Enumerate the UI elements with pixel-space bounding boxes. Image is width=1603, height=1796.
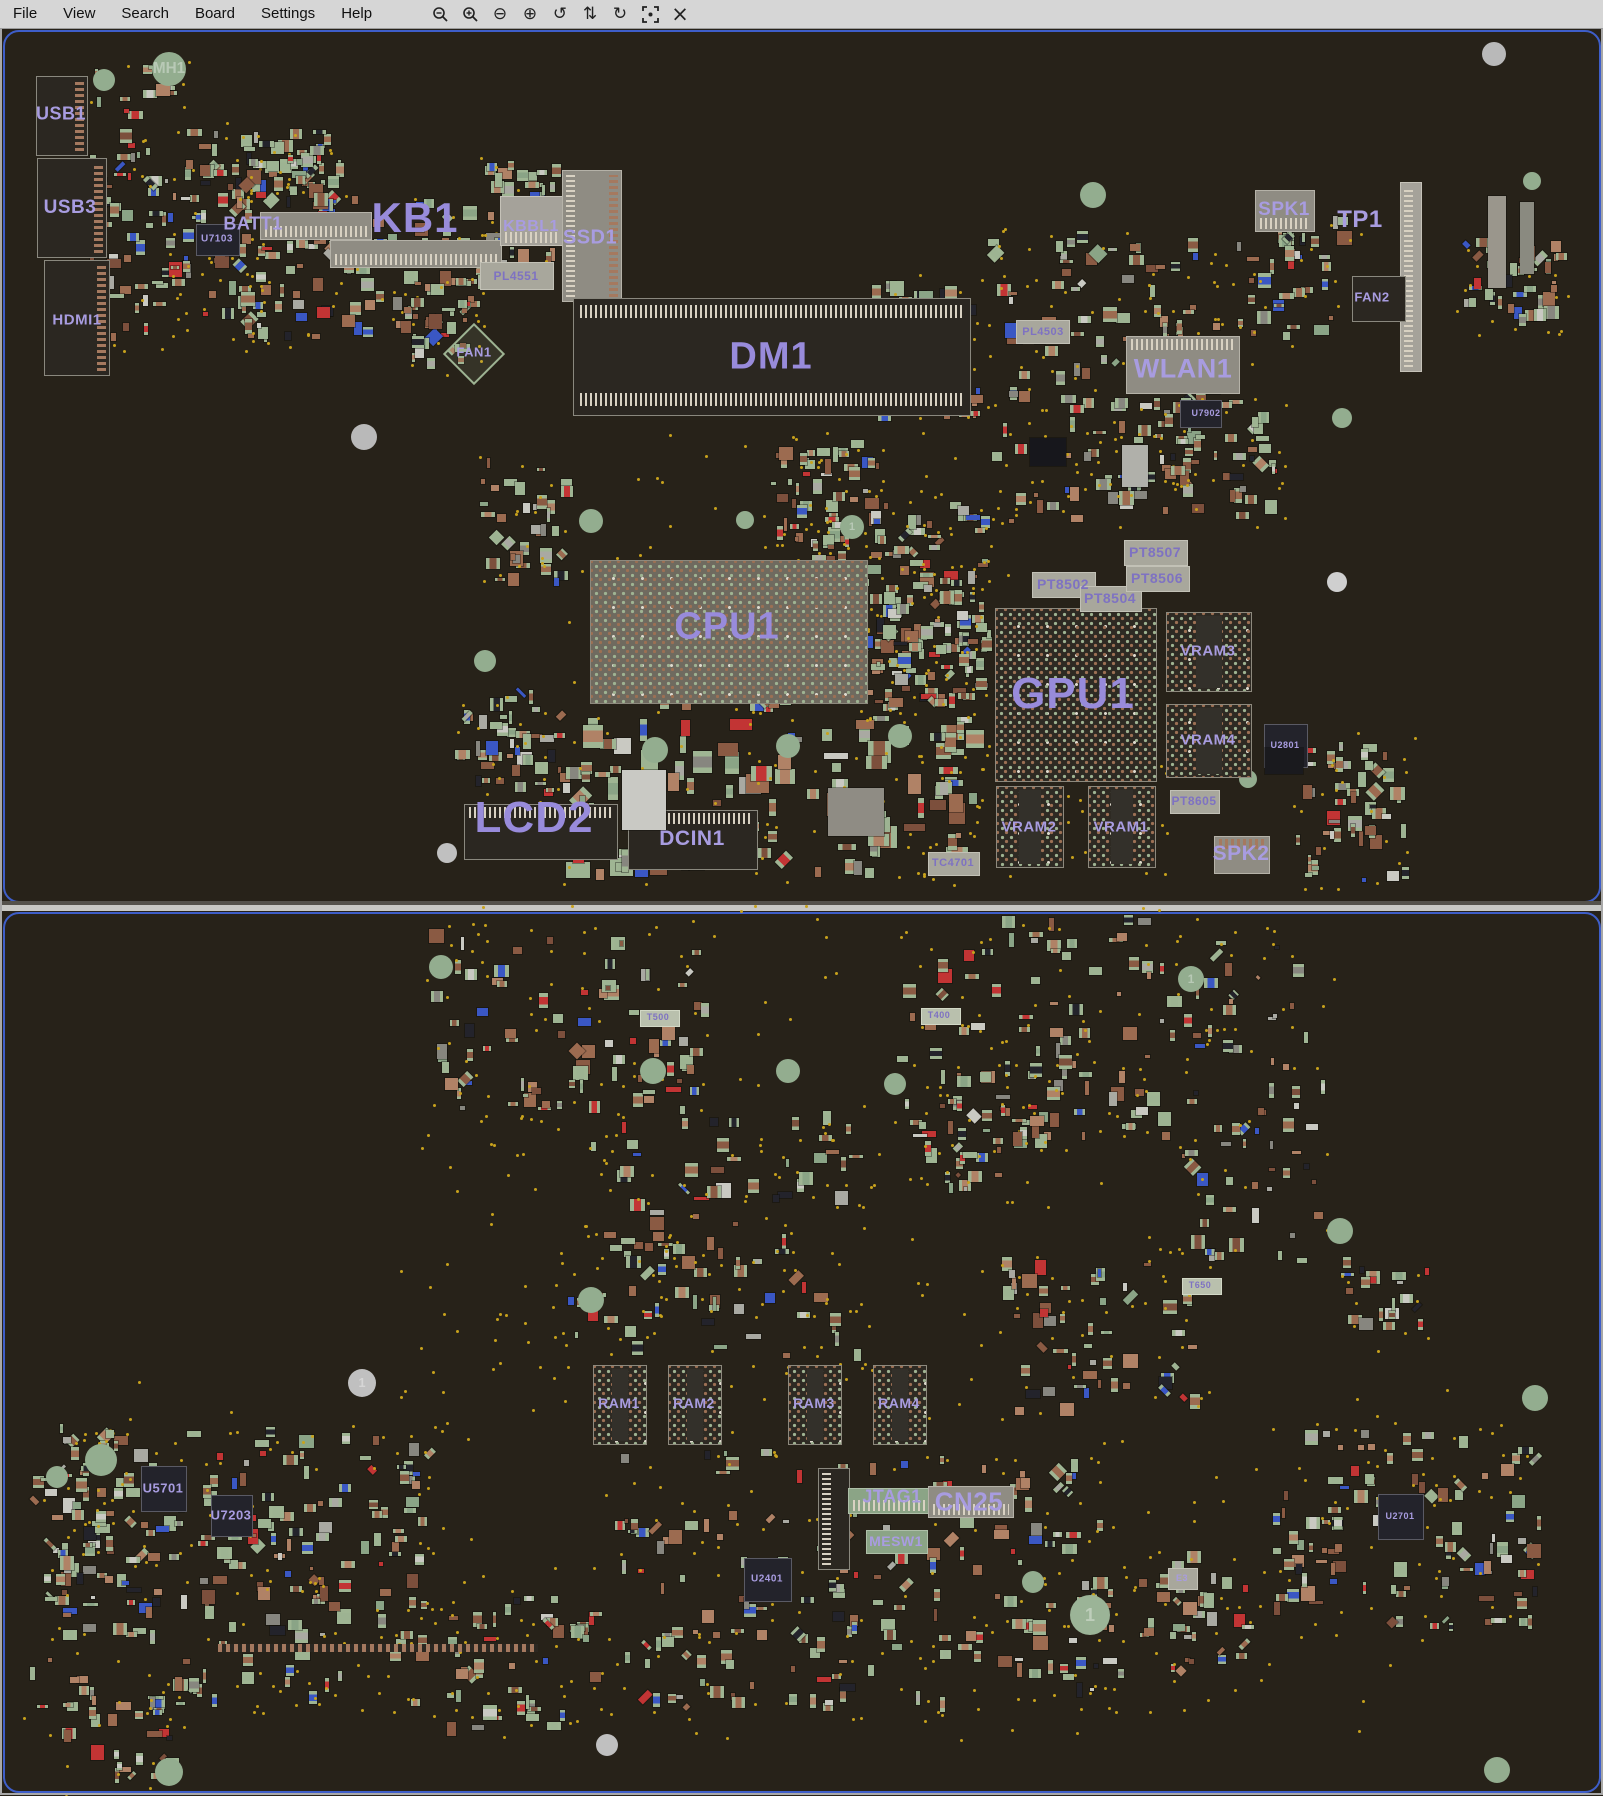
via-dot	[675, 1265, 678, 1268]
smd-part	[1361, 1277, 1369, 1288]
smd-part	[854, 861, 862, 875]
via-dot	[1159, 1248, 1162, 1251]
label-u7902[interactable]: U7902	[1191, 408, 1220, 418]
smd-part	[205, 1606, 214, 1619]
smd-part	[1094, 1664, 1099, 1668]
smd-part	[1552, 281, 1556, 284]
smd-part	[966, 1631, 976, 1641]
smd-part	[1283, 332, 1290, 340]
label-pl4503[interactable]: PL4503	[1022, 326, 1064, 338]
smd-part	[481, 479, 485, 484]
smd-part	[1404, 1586, 1410, 1590]
menu-item-settings[interactable]: Settings	[248, 0, 328, 28]
smd-part	[901, 1461, 908, 1468]
zoom-in-icon[interactable]	[459, 3, 481, 25]
smd-part	[1188, 1345, 1196, 1350]
smd-part	[908, 515, 916, 529]
smd-part	[1403, 1433, 1412, 1444]
smd-part	[894, 546, 909, 554]
smd-part	[507, 754, 513, 758]
component-block-1[interactable]	[1488, 196, 1506, 288]
smd-part	[881, 640, 894, 653]
smd-part	[120, 129, 132, 143]
smd-part	[1312, 1180, 1316, 1183]
rotate-cw-icon[interactable]: ↻	[609, 3, 631, 25]
smd-part	[183, 1659, 190, 1664]
label-batt1[interactable]: BATT1	[223, 214, 282, 235]
smd-part	[657, 1541, 664, 1554]
via-dot	[1187, 276, 1190, 279]
via-dot	[1335, 1634, 1338, 1637]
via-dot	[279, 1690, 282, 1693]
label-pt8605[interactable]: PT8605	[1171, 794, 1216, 808]
smd-part	[1544, 306, 1559, 319]
smd-part	[1365, 761, 1373, 770]
via-dot	[655, 926, 658, 929]
via-dot	[1509, 1615, 1512, 1618]
smd-part	[1492, 1534, 1495, 1542]
via-dot	[749, 723, 752, 726]
menu-item-board[interactable]: Board	[182, 0, 248, 28]
smd-part	[143, 90, 157, 98]
center-view-icon[interactable]	[639, 3, 661, 25]
component-block-5[interactable]	[1122, 445, 1148, 487]
smd-part	[1123, 1283, 1127, 1290]
smd-part	[968, 571, 975, 584]
via-dot	[1377, 1350, 1380, 1353]
via-dot	[456, 1631, 459, 1634]
label-u2401[interactable]: U2401	[751, 1574, 783, 1585]
close-icon[interactable]: ×	[669, 3, 691, 25]
smd-part	[566, 862, 590, 878]
smd-part	[779, 447, 792, 461]
smd-part	[1479, 1596, 1494, 1601]
component-block-7[interactable]	[828, 788, 884, 836]
label-t500[interactable]: T500	[647, 1012, 670, 1022]
smd-part	[1334, 1517, 1341, 1529]
minus-circle-icon[interactable]: ⊖	[489, 3, 511, 25]
smd-part	[552, 164, 561, 177]
label-u5701[interactable]: U5701	[143, 1481, 184, 1496]
via-dot	[1490, 1496, 1493, 1499]
smd-part	[884, 503, 888, 510]
via-dot	[800, 466, 803, 469]
label-wlan1[interactable]: WLAN1	[1134, 354, 1233, 385]
smd-part	[957, 1076, 971, 1088]
label-spk2[interactable]: SPK2	[1213, 842, 1270, 866]
via-dot	[1196, 918, 1199, 921]
smd-part	[1394, 1562, 1406, 1577]
component-block-6[interactable]	[622, 770, 666, 830]
smd-part	[537, 170, 547, 175]
via-dot	[530, 1118, 533, 1121]
via-dot	[125, 1472, 128, 1475]
via-dot	[476, 1676, 479, 1679]
via-dot	[581, 570, 584, 573]
smd-part	[313, 278, 323, 291]
smd-part	[1382, 814, 1390, 819]
via-dot	[758, 760, 761, 763]
smd-part	[379, 1562, 383, 1566]
via-dot	[925, 684, 928, 687]
via-dot	[939, 1094, 942, 1097]
smd-part	[258, 1519, 271, 1528]
label-cn25[interactable]: CN25	[935, 1487, 1003, 1518]
smd-part	[523, 1094, 528, 1097]
smd-part	[409, 1597, 415, 1608]
via-dot	[714, 507, 717, 510]
smd-part	[232, 1478, 237, 1488]
smd-part	[518, 249, 528, 263]
smd-part	[927, 521, 932, 529]
smd-part	[838, 844, 856, 850]
label-kbbl1[interactable]: KBBL1	[503, 218, 559, 236]
label-tp1[interactable]: TP1	[1337, 206, 1383, 234]
via-dot	[1067, 1625, 1070, 1628]
via-dot	[437, 342, 440, 345]
smd-part	[285, 332, 291, 340]
component-block-3[interactable]	[1265, 748, 1303, 774]
label-pt8506[interactable]: PT8506	[1131, 570, 1183, 586]
smd-part	[244, 1460, 250, 1466]
smd-part	[404, 307, 410, 313]
smd-part	[1379, 1308, 1383, 1321]
label-kb1[interactable]: KB1	[371, 194, 458, 242]
smd-part	[581, 990, 589, 996]
mounting-hole	[1482, 42, 1506, 66]
smd-part	[807, 789, 818, 799]
via-dot	[75, 1442, 78, 1445]
smd-part	[605, 959, 616, 969]
label-usb3[interactable]: USB3	[44, 197, 97, 219]
smd-part	[338, 1671, 342, 1682]
smd-part	[897, 604, 909, 613]
label-vram1[interactable]: VRAM1	[1093, 819, 1148, 836]
via-dot	[356, 268, 359, 271]
smd-part	[916, 1691, 921, 1705]
label-gpu1[interactable]: GPU1	[1011, 669, 1135, 719]
label-e3[interactable]: E3	[1176, 1573, 1188, 1583]
via-dot	[1027, 1024, 1030, 1027]
smd-part	[1278, 1251, 1282, 1260]
via-dot	[923, 596, 926, 599]
smd-part	[1025, 1497, 1032, 1512]
via-dot	[806, 1314, 809, 1317]
smd-part	[645, 1243, 653, 1251]
smd-part	[832, 763, 841, 772]
via-dot	[1017, 1698, 1020, 1701]
smd-part	[97, 97, 101, 107]
via-dot	[393, 291, 396, 294]
via-dot	[323, 1635, 326, 1638]
via-dot	[1102, 247, 1105, 250]
smd-part	[152, 281, 163, 284]
smd-part	[919, 1122, 925, 1130]
label-pt8502[interactable]: PT8502	[1037, 576, 1089, 592]
via-dot	[1288, 1579, 1291, 1582]
smd-part	[1062, 952, 1072, 960]
via-dot	[260, 310, 263, 313]
smd-part	[147, 1731, 162, 1738]
smd-part	[257, 312, 266, 317]
label-hdmi1[interactable]: HDMI1	[52, 312, 101, 329]
rotate-ccw-icon[interactable]: ↺	[549, 3, 571, 25]
smd-part	[460, 1106, 465, 1110]
smd-part	[293, 300, 304, 309]
smd-part	[287, 1539, 291, 1550]
label-dcin1[interactable]: DCIN1	[659, 827, 725, 851]
via-dot	[1567, 295, 1570, 298]
smd-part	[1330, 831, 1335, 839]
via-dot	[680, 745, 683, 748]
label-fan1[interactable]: FAN1	[456, 345, 491, 360]
smd-part	[987, 630, 991, 638]
label-ram3[interactable]: RAM3	[793, 1395, 835, 1411]
smd-part	[1275, 946, 1280, 949]
label-dm1[interactable]: DM1	[729, 336, 812, 379]
smd-part	[1469, 298, 1475, 306]
via-dot	[176, 297, 179, 300]
smd-part	[515, 782, 526, 792]
via-dot	[825, 507, 828, 510]
smd-part	[455, 750, 470, 760]
smd-part	[1173, 1624, 1185, 1631]
via-dot	[411, 364, 414, 367]
smd-part	[285, 1571, 291, 1576]
label-t650[interactable]: T650	[1189, 1280, 1212, 1290]
smd-part	[1383, 768, 1394, 782]
label-u2801[interactable]: U2801	[1270, 740, 1299, 750]
via-dot	[1316, 1067, 1319, 1070]
smd-part	[165, 179, 168, 182]
smd-part	[825, 459, 831, 473]
component-block-2[interactable]	[1520, 202, 1534, 274]
board-canvas[interactable]: MH11111USB1USB3HDMI1U7103BATT1KB1KBBL1SS…	[0, 28, 1603, 1795]
via-dot	[95, 1432, 98, 1435]
smd-part	[940, 1456, 944, 1464]
smd-part	[1101, 1331, 1112, 1334]
via-dot	[256, 257, 259, 260]
smd-part	[1321, 1080, 1325, 1094]
smd-part	[1187, 1099, 1196, 1104]
smd-part	[814, 1153, 827, 1162]
label-vram3[interactable]: VRAM3	[1180, 643, 1235, 660]
label-ram4[interactable]: RAM4	[878, 1395, 920, 1411]
smd-part	[318, 1501, 322, 1505]
smd-part	[288, 1620, 302, 1630]
smd-part	[982, 1110, 992, 1121]
smd-part	[1226, 1177, 1234, 1184]
smd-part	[897, 1056, 908, 1062]
smd-part	[1351, 824, 1355, 838]
smd-part	[1050, 1028, 1063, 1038]
via-dot	[1004, 228, 1007, 231]
smd-part	[596, 869, 603, 880]
smd-part	[491, 485, 499, 491]
smd-part	[883, 625, 895, 639]
label-pl4551[interactable]: PL4551	[493, 269, 538, 283]
smd-part	[1242, 1625, 1255, 1629]
menu-item-file[interactable]: File	[0, 0, 50, 28]
smd-part	[1359, 1318, 1372, 1330]
smd-part	[681, 720, 690, 736]
smd-part	[687, 778, 694, 794]
menu-item-search[interactable]: Search	[108, 0, 182, 28]
smd-part	[1391, 1585, 1397, 1594]
menu-item-help[interactable]: Help	[328, 0, 385, 28]
via-dot	[51, 1638, 54, 1641]
smd-part	[1327, 751, 1335, 764]
smd-part	[1292, 1086, 1300, 1098]
via-dot	[824, 976, 827, 979]
label-ram1[interactable]: RAM1	[598, 1395, 640, 1411]
via-dot	[420, 1617, 423, 1620]
via-dot	[272, 1685, 275, 1688]
smd-part	[389, 1552, 400, 1557]
menu-item-view[interactable]: View	[50, 0, 108, 28]
smd-part	[1183, 1602, 1196, 1615]
flip-vertical-icon[interactable]: ⇅	[579, 3, 601, 25]
plus-circle-icon[interactable]: ⊕	[519, 3, 541, 25]
smd-part	[1126, 1123, 1136, 1130]
label-tc4701[interactable]: TC4701	[932, 857, 974, 869]
label-u2701[interactable]: U2701	[1385, 1511, 1414, 1521]
smd-part	[750, 1682, 755, 1689]
component-kb1-connector[interactable]	[330, 240, 502, 268]
smd-part	[312, 334, 320, 339]
smd-part	[1230, 490, 1235, 502]
smd-part	[894, 642, 907, 645]
component-block-4[interactable]	[1030, 438, 1066, 466]
smd-part	[1370, 805, 1375, 808]
label-u7203[interactable]: U7203	[211, 1508, 252, 1523]
smd-part	[868, 1665, 874, 1676]
smd-part	[693, 1630, 697, 1634]
smd-part	[628, 1530, 637, 1534]
label-ram2[interactable]: RAM2	[673, 1395, 715, 1411]
via-dot	[825, 936, 828, 939]
via-dot	[1000, 287, 1003, 290]
smd-part	[486, 741, 498, 756]
smd-part	[956, 833, 962, 838]
smd-part	[1383, 1322, 1395, 1330]
label-vram2[interactable]: VRAM2	[1001, 819, 1056, 836]
smd-part	[554, 733, 565, 738]
smd-part	[1068, 1365, 1071, 1369]
zoom-out-icon[interactable]	[429, 3, 451, 25]
via-dot	[1263, 1571, 1266, 1574]
via-dot	[816, 1355, 819, 1358]
smd-part	[1338, 1445, 1343, 1451]
smd-part	[717, 1534, 723, 1540]
via-dot	[66, 1594, 69, 1597]
smd-part	[445, 1078, 457, 1090]
smd-part	[627, 1140, 637, 1149]
smd-part	[215, 255, 229, 267]
label-fan2[interactable]: FAN2	[1354, 290, 1389, 305]
via-dot	[922, 432, 925, 435]
smd-part	[1257, 311, 1271, 324]
smd-part	[713, 1632, 720, 1638]
smd-part	[705, 1451, 709, 1459]
via-dot	[825, 1302, 828, 1305]
via-dot	[1291, 955, 1294, 958]
via-dot	[1006, 1086, 1009, 1089]
via-dot	[1232, 283, 1235, 286]
smd-part	[456, 1669, 469, 1679]
smd-part	[474, 1659, 484, 1673]
via-dot	[105, 1440, 108, 1443]
smd-part	[1243, 1585, 1248, 1592]
label-u7103[interactable]: U7103	[201, 234, 233, 245]
label-pt8504[interactable]: PT8504	[1084, 590, 1136, 606]
via-dot	[1143, 1078, 1146, 1081]
via-dot	[1145, 872, 1148, 875]
smd-part	[929, 545, 940, 550]
label-cpu1[interactable]: CPU1	[674, 606, 779, 649]
smd-part	[969, 793, 977, 804]
label-t400[interactable]: T400	[928, 1010, 951, 1020]
label-spk1[interactable]: SPK1	[1258, 199, 1310, 221]
smd-part	[835, 1332, 839, 1345]
via-dot	[376, 1609, 379, 1612]
via-dot	[437, 1047, 440, 1050]
smd-part	[1185, 448, 1193, 457]
via-dot	[784, 1224, 787, 1227]
smd-part	[64, 1730, 71, 1742]
smd-part	[949, 693, 955, 708]
component-edge-strip[interactable]	[218, 1644, 538, 1652]
smd-part	[1074, 1109, 1085, 1116]
via-dot	[838, 478, 841, 481]
via-dot	[361, 1709, 364, 1712]
via-dot	[1208, 1391, 1211, 1394]
smd-part	[568, 1297, 575, 1305]
smd-part	[511, 554, 515, 560]
label-lcd2[interactable]: LCD2	[475, 793, 594, 843]
smd-part	[1233, 453, 1246, 459]
via-dot	[776, 544, 779, 547]
via-dot	[560, 1252, 563, 1255]
smd-part	[748, 1179, 759, 1193]
smd-part	[1482, 1473, 1488, 1479]
label-pt8507[interactable]: PT8507	[1129, 544, 1181, 560]
label-jtag1[interactable]: JTAG1	[862, 1487, 921, 1508]
smd-part	[913, 1134, 928, 1138]
component-jtag-side-connector[interactable]	[818, 1468, 850, 1570]
label-vram4[interactable]: VRAM4	[1180, 732, 1235, 749]
via-dot	[253, 1711, 256, 1714]
via-dot	[1154, 1396, 1157, 1399]
via-dot	[1207, 1699, 1210, 1702]
label-ssd1[interactable]: SSD1	[563, 227, 617, 250]
via-dot	[1337, 888, 1340, 891]
smd-part	[974, 1651, 982, 1662]
mounting-hole	[1332, 408, 1352, 428]
via-dot	[418, 1493, 421, 1496]
smd-part	[1323, 1431, 1330, 1437]
smd-part	[1223, 1005, 1236, 1015]
label-mesw1[interactable]: MESW1	[869, 1533, 923, 1549]
smd-part	[1129, 957, 1139, 971]
smd-part	[786, 1159, 789, 1167]
smd-part	[84, 1527, 96, 1539]
smd-part	[212, 1694, 217, 1707]
label-usb1[interactable]: USB1	[36, 104, 86, 125]
smd-part	[1065, 487, 1070, 493]
smd-part	[971, 411, 980, 416]
smd-part	[154, 1589, 162, 1595]
